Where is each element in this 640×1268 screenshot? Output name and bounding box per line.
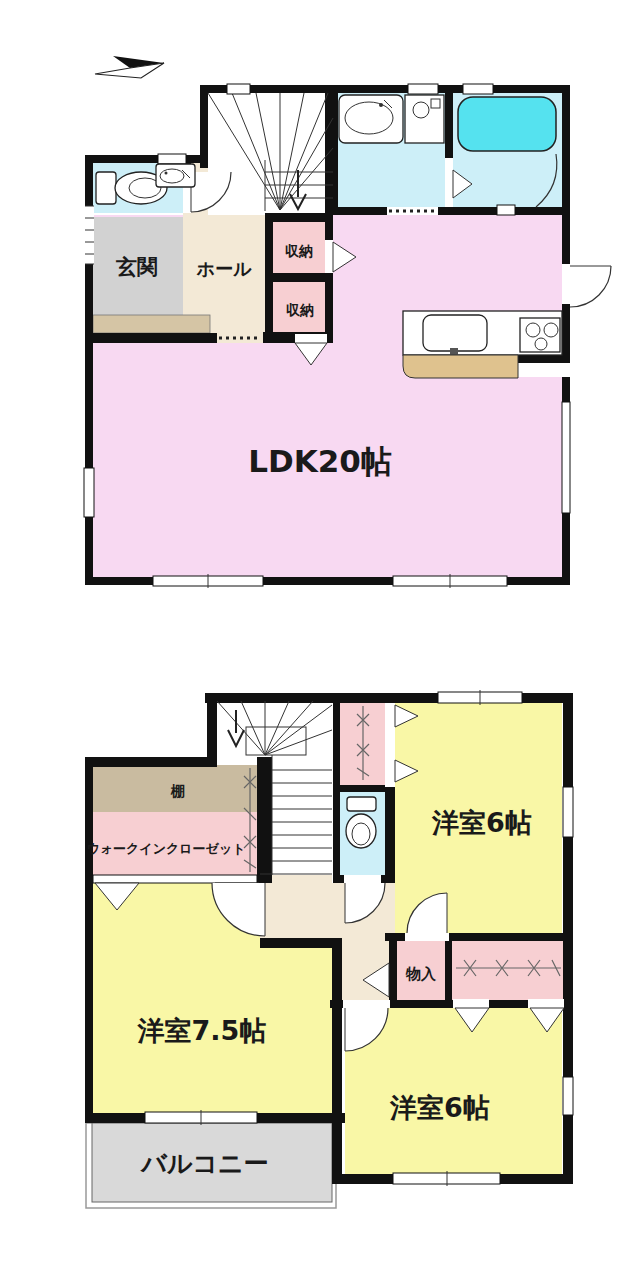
entrance-label: 玄関 (115, 255, 158, 279)
room-west-label: 洋室7.5帖 (137, 1015, 267, 1046)
window (463, 84, 493, 94)
storage-mono-label: 物入 (405, 965, 437, 983)
floor2-plan: 棚 ウォークインクローゼット 物入 洋室6帖 洋室7.5帖 洋室6帖 バルコニー (85, 690, 573, 1208)
window (153, 574, 263, 588)
window (393, 574, 507, 588)
wic-label: ウォークインクローゼット (86, 841, 245, 856)
floor1-plan: 玄関 ホール 収納 収納 LDK20帖 (84, 84, 611, 588)
shelf-label: 棚 (170, 783, 185, 799)
corner-sink-icon (156, 164, 195, 187)
room-se-label: 洋室6帖 (389, 1092, 490, 1123)
staircase-1f (208, 93, 333, 215)
back-door (562, 264, 611, 307)
window (408, 84, 438, 94)
washing-machine-icon (405, 95, 444, 143)
window (158, 154, 186, 164)
hall-label: ホール (197, 258, 252, 279)
closet-se (452, 941, 565, 1000)
window (563, 787, 573, 837)
hall-2f-landing (260, 875, 332, 938)
window (562, 402, 570, 513)
storage1-label: 収納 (285, 243, 313, 259)
window (393, 1171, 500, 1186)
ldk-label: LDK20帖 (248, 443, 392, 479)
window (563, 1077, 573, 1115)
storage2-label: 収納 (286, 302, 314, 318)
window (438, 690, 522, 705)
kitchen-lower-counter (403, 355, 518, 378)
balcony-label: バルコニー (139, 1149, 268, 1178)
floorplan-image: 玄関 ホール 収納 収納 LDK20帖 (0, 0, 640, 1268)
entrance-step (93, 315, 210, 333)
toilet-2f-icon (346, 797, 376, 848)
window (84, 468, 94, 517)
vanity-sink-icon (339, 95, 403, 143)
balcony-window (145, 1110, 257, 1125)
entrance-door (84, 206, 94, 264)
north-arrow-icon (95, 56, 164, 78)
window (227, 84, 250, 94)
room-ne-label: 洋室6帖 (431, 807, 532, 838)
